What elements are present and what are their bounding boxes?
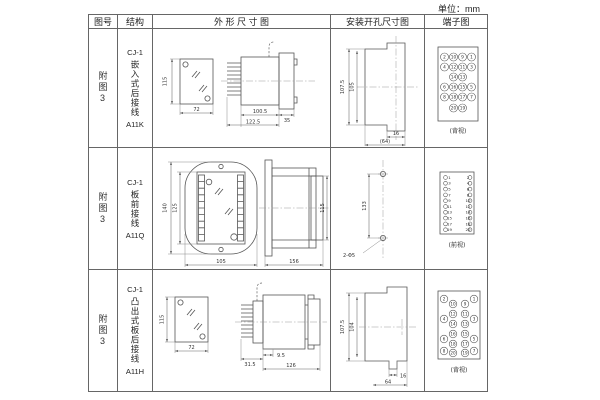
dim-label-inner: 104 — [350, 322, 356, 332]
svg-text:20: 20 — [450, 106, 456, 112]
terminal-cell-a11h: (背视) 2109112114141331615618175820197 — [425, 270, 487, 391]
structure-cell: CJ-1 凸出式板后接线 A11H — [118, 270, 153, 391]
terminal-diagram-a11h: (背视) 2109112114141331615618175820197 — [426, 271, 487, 391]
dim-label-depth-a: 31.5 — [244, 362, 255, 368]
datasheet-page: 单位：mm 图号 结构 外 形 尺 寸 图 安装开孔尺寸图 端子图 附图3 CJ… — [0, 0, 600, 400]
svg-text:5: 5 — [470, 85, 473, 91]
mounting-cell-a11k: 107.5 105 16 (64) — [331, 29, 425, 148]
dim-label-flange: 35 — [284, 118, 290, 124]
svg-text:18: 18 — [450, 341, 456, 346]
svg-text:20: 20 — [450, 350, 456, 355]
dim-label-height: 115 — [163, 77, 169, 87]
model-name: CJ-1 — [127, 48, 143, 57]
terminal-diagram-a11q: (前视) 1234567891011121314151617181920 — [426, 148, 487, 269]
svg-text:15: 15 — [447, 216, 452, 221]
svg-text:12: 12 — [450, 65, 456, 71]
dim-label-span: 133 — [362, 201, 368, 211]
col-header-fig-no: 图号 — [89, 15, 118, 29]
svg-text:12: 12 — [450, 311, 456, 316]
svg-text:3: 3 — [448, 181, 451, 186]
col-header-mounting: 安装开孔尺寸图 — [331, 15, 425, 29]
outline-cell-a11q: 140 125 105 156 115 — [153, 148, 331, 270]
svg-text:6: 6 — [443, 85, 446, 91]
dim-label-body: 100.5 — [253, 109, 267, 115]
dim-label-width: 72 — [188, 345, 194, 351]
svg-text:3: 3 — [470, 65, 473, 71]
mounting-cell-a11q: 133 2-Φ5 — [331, 148, 425, 270]
svg-text:18: 18 — [465, 221, 470, 226]
model-code: A11Q — [126, 231, 145, 240]
svg-text:11: 11 — [447, 204, 452, 209]
structure-cell: CJ-1 嵌入式后接线 A11K — [118, 29, 153, 148]
dim-label-length: 126 — [286, 363, 296, 369]
figure-number: 附图3 — [97, 192, 110, 226]
mounting-drawing-a11k: 107.5 105 16 (64) — [331, 29, 424, 147]
figure-number: 附图3 — [97, 71, 110, 105]
svg-text:4: 4 — [443, 65, 446, 71]
svg-text:13: 13 — [459, 75, 465, 81]
svg-text:7: 7 — [448, 192, 451, 197]
svg-text:13: 13 — [447, 210, 452, 215]
terminal-view-caption: (背视) — [449, 127, 466, 135]
svg-text:5: 5 — [448, 187, 451, 192]
dim-label-holes: 2-Φ5 — [343, 253, 355, 259]
svg-text:10: 10 — [450, 55, 456, 61]
dim-label-height: 115 — [160, 314, 166, 324]
dim-label-notch: 16 — [393, 131, 399, 137]
mounting-cell-a11h: 107.5 104 16 64 — [331, 270, 425, 391]
outline-drawing-a11q: 140 125 105 156 115 — [153, 148, 330, 269]
svg-text:6: 6 — [442, 336, 445, 341]
dim-label-side-h: 115 — [320, 203, 326, 213]
svg-text:4: 4 — [442, 316, 445, 321]
dim-label-width: 64 — [385, 379, 391, 385]
terminal-diagram-a11k: (背视) 2109141211314136161558181772019 — [426, 29, 487, 147]
terminal-view-caption: (前视) — [448, 241, 465, 249]
dim-label-outer: 107.5 — [340, 80, 346, 94]
col-header-outline: 外 形 尺 寸 图 — [153, 15, 331, 29]
svg-text:9: 9 — [461, 55, 464, 61]
dim-label-width: 105 — [216, 259, 226, 265]
col-header-terminal: 端子图 — [425, 15, 487, 29]
model-name: CJ-1 — [127, 285, 143, 294]
outline-drawing-a11h: 115 72 31.5 9.5 126 — [153, 271, 330, 391]
svg-text:15: 15 — [459, 85, 465, 91]
svg-text:1: 1 — [470, 55, 473, 61]
dim-label-width: (64) — [380, 139, 390, 145]
mounting-drawing-a11q: 133 2-Φ5 — [331, 148, 424, 269]
svg-text:1: 1 — [472, 296, 475, 301]
terminal-cell-a11q: (前视) 1234567891011121314151617181920 — [425, 148, 487, 270]
svg-text:9: 9 — [448, 198, 451, 203]
structure-label: 板前接线 — [129, 190, 141, 228]
svg-text:14: 14 — [450, 75, 456, 81]
svg-text:16: 16 — [450, 331, 456, 336]
dim-label-width: 72 — [193, 107, 199, 113]
dim-label-outer: 107.5 — [340, 319, 346, 333]
svg-text:2: 2 — [442, 296, 445, 301]
dimension-table: 图号 结构 外 形 尺 寸 图 安装开孔尺寸图 端子图 附图3 CJ-1 嵌入式… — [88, 14, 488, 392]
dim-label-notch: 16 — [400, 373, 406, 379]
model-code: A11K — [126, 120, 144, 129]
svg-text:19: 19 — [459, 106, 465, 112]
svg-text:20: 20 — [465, 227, 470, 232]
dim-label-length: 156 — [289, 259, 299, 265]
dim-label-outer-h: 140 — [163, 203, 169, 213]
terminal-view-caption: (背视) — [450, 366, 467, 374]
svg-text:3: 3 — [472, 316, 475, 321]
svg-text:8: 8 — [443, 95, 446, 101]
svg-text:7: 7 — [472, 348, 475, 353]
svg-text:13: 13 — [462, 321, 468, 326]
svg-text:17: 17 — [459, 95, 465, 101]
svg-text:16: 16 — [450, 85, 456, 91]
svg-text:9: 9 — [463, 301, 466, 306]
figure-number-cell: 附图3 — [89, 148, 118, 270]
mounting-drawing-a11h: 107.5 104 16 64 — [331, 271, 424, 391]
svg-text:11: 11 — [459, 65, 465, 71]
svg-text:7: 7 — [470, 95, 473, 101]
figure-number-cell: 附图3 — [89, 270, 118, 391]
svg-text:1: 1 — [448, 175, 451, 180]
structure-cell: CJ-1 板前接线 A11Q — [118, 148, 153, 270]
svg-text:12: 12 — [465, 204, 470, 209]
dim-label-total: 122.5 — [246, 120, 260, 126]
svg-text:10: 10 — [465, 198, 470, 203]
svg-text:5: 5 — [472, 336, 475, 341]
outline-cell-a11h: 115 72 31.5 9.5 126 — [153, 270, 331, 391]
figure-number-cell: 附图3 — [89, 29, 118, 148]
dim-label-inner: 105 — [350, 82, 356, 92]
model-name: CJ-1 — [127, 178, 143, 187]
svg-text:18: 18 — [450, 95, 456, 101]
svg-text:14: 14 — [465, 210, 470, 215]
svg-text:8: 8 — [442, 348, 445, 353]
dim-label-depth-b: 9.5 — [277, 353, 285, 359]
col-header-structure: 结构 — [118, 15, 153, 29]
svg-text:10: 10 — [450, 301, 456, 306]
svg-text:17: 17 — [447, 221, 452, 226]
svg-text:16: 16 — [465, 216, 470, 221]
structure-label: 嵌入式后接线 — [129, 60, 141, 117]
svg-text:19: 19 — [462, 350, 468, 355]
structure-label: 凸出式板后接线 — [129, 297, 141, 364]
model-code: A11H — [126, 367, 144, 376]
svg-text:19: 19 — [447, 227, 452, 232]
svg-text:17: 17 — [462, 341, 468, 346]
svg-text:15: 15 — [462, 331, 468, 336]
figure-number: 附图3 — [97, 314, 110, 348]
svg-text:2: 2 — [443, 55, 446, 61]
terminal-cell-a11k: (背视) 2109141211314136161558181772019 — [425, 29, 487, 148]
outline-drawing-a11k: 115 72 100.5 35 122.5 — [153, 29, 330, 147]
svg-text:14: 14 — [450, 321, 456, 326]
outline-cell-a11k: 115 72 100.5 35 122.5 — [153, 29, 331, 148]
dim-label-inner-h: 125 — [173, 203, 179, 213]
svg-text:11: 11 — [462, 311, 468, 316]
